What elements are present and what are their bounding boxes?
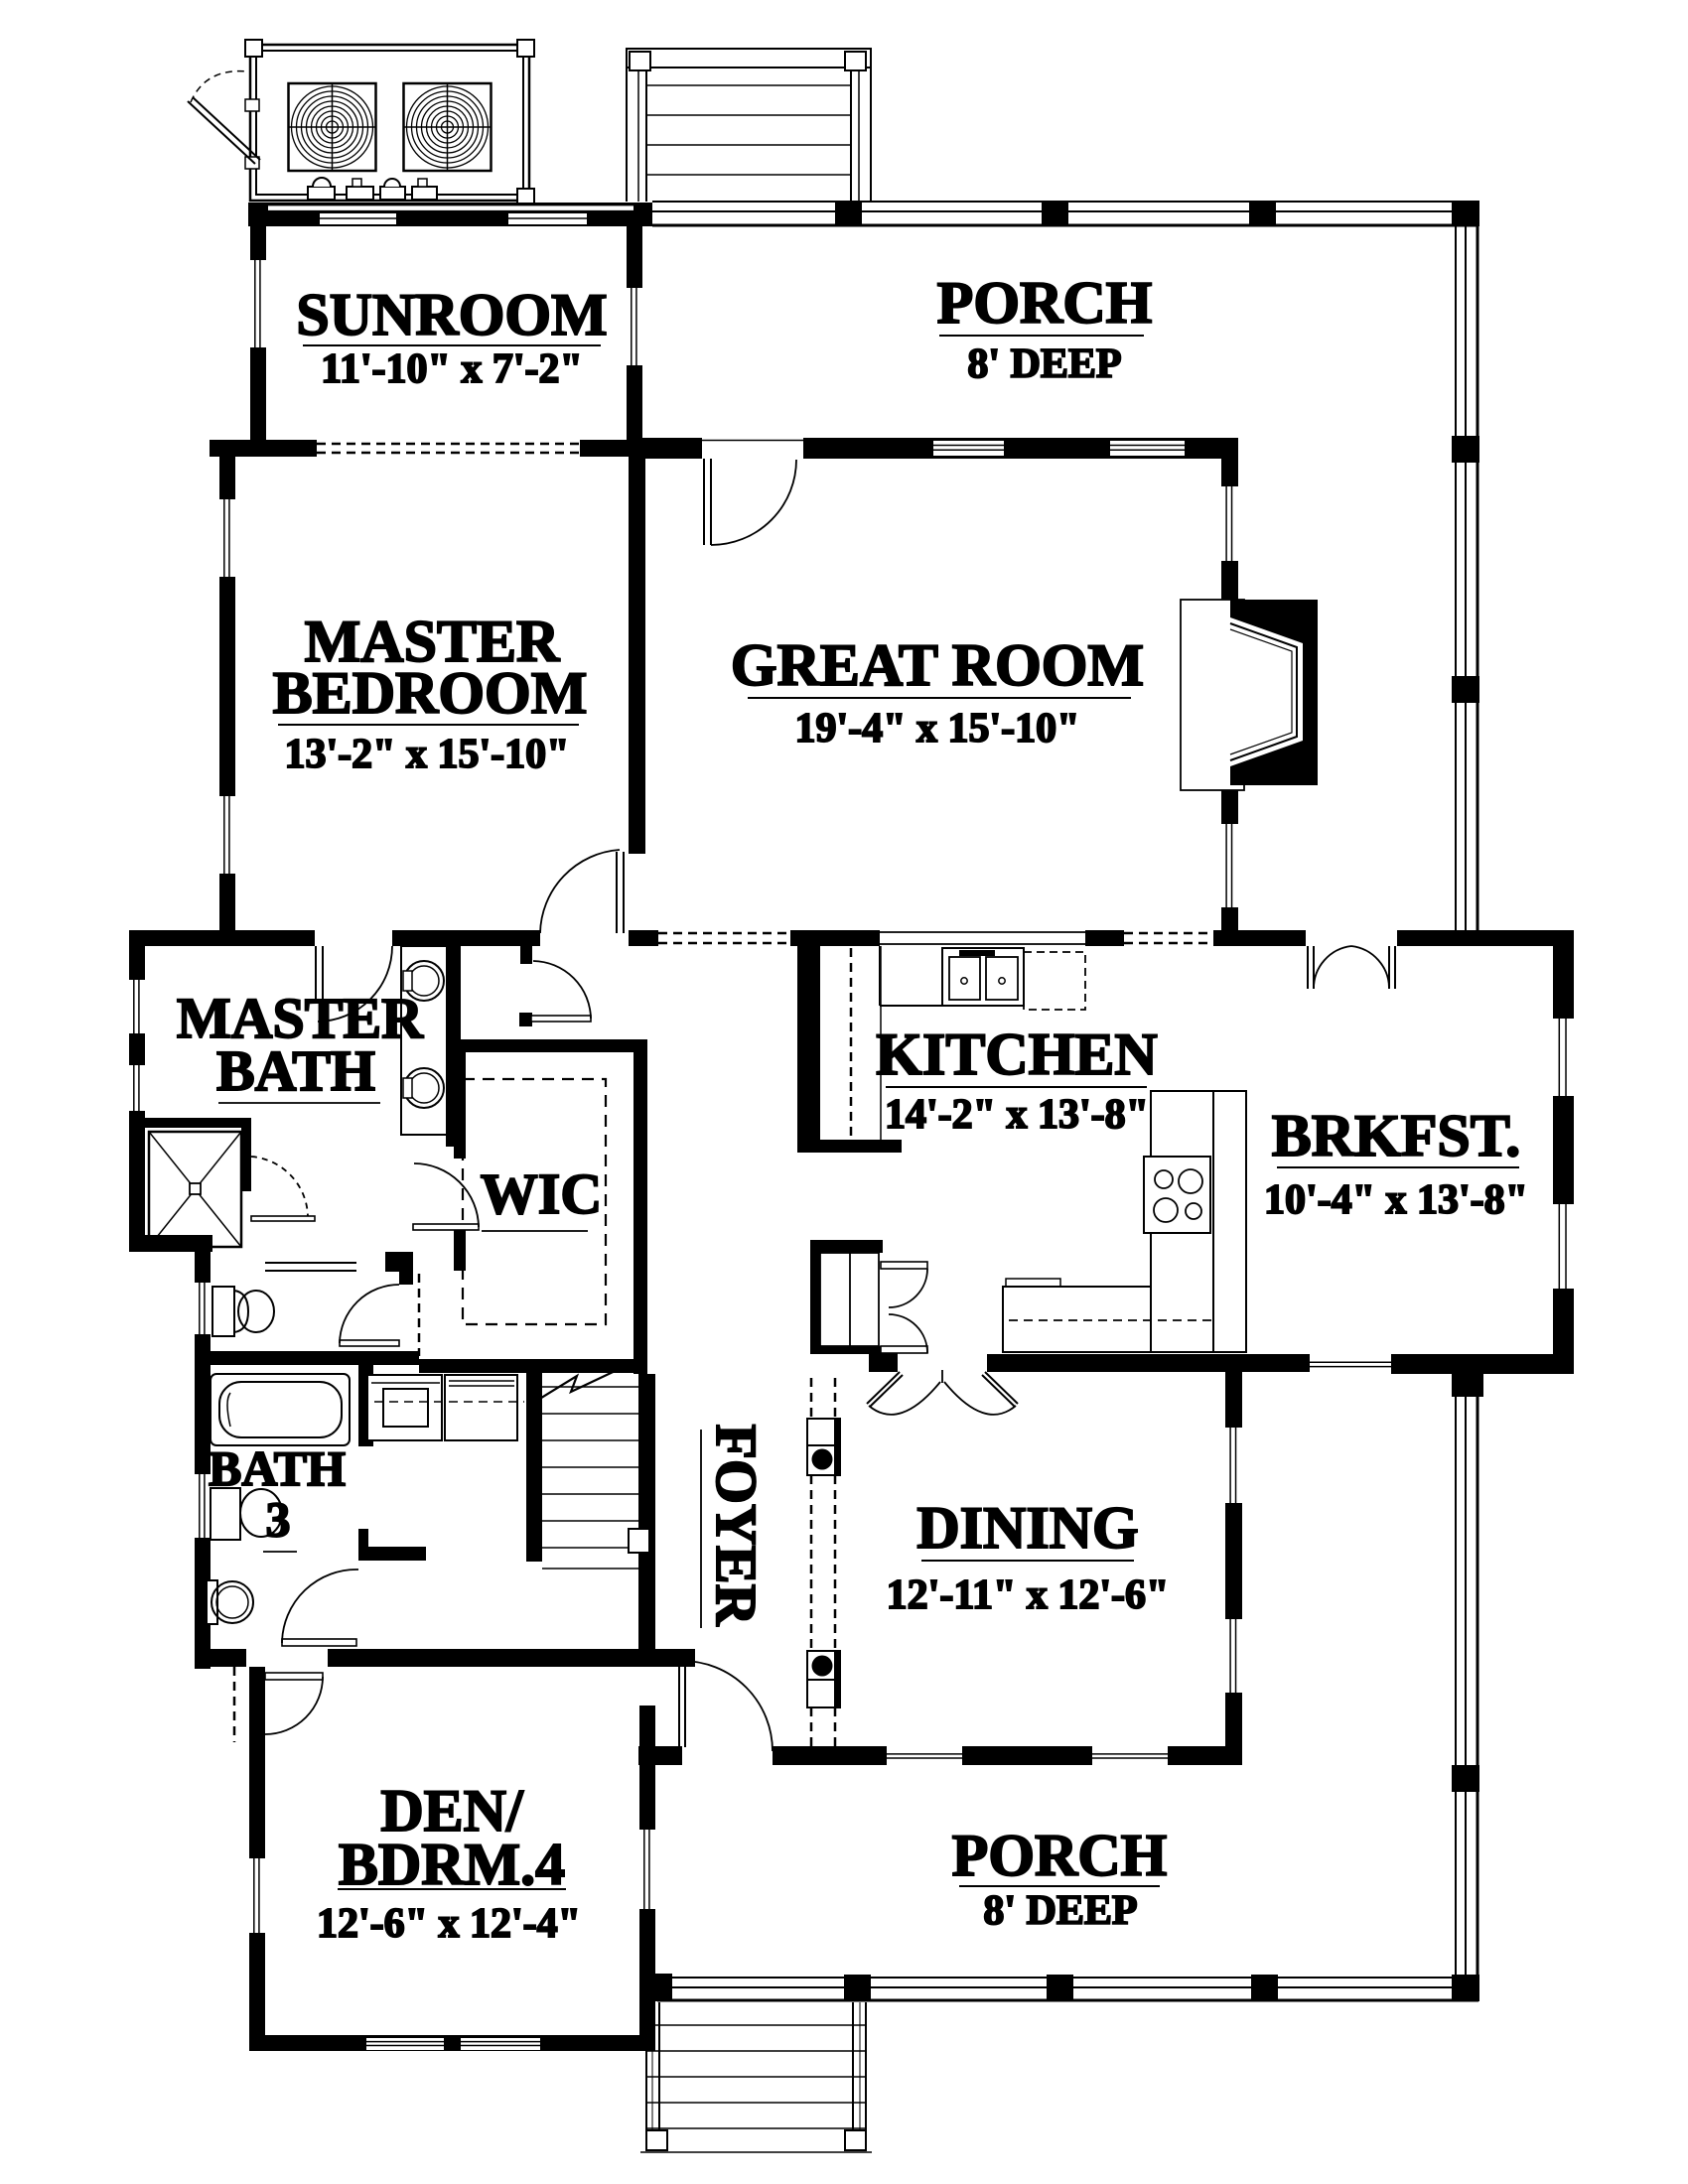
svg-text:8' DEEP: 8' DEEP: [967, 341, 1121, 387]
svg-text:DINING: DINING: [916, 1495, 1138, 1561]
svg-text:3: 3: [266, 1491, 291, 1547]
svg-text:12'-11" x 12'-6": 12'-11" x 12'-6": [887, 1572, 1170, 1618]
svg-text:SUNROOM: SUNROOM: [296, 282, 607, 347]
svg-text:FOYER: FOYER: [704, 1425, 769, 1627]
svg-text:14'-2" x 13'-8": 14'-2" x 13'-8": [885, 1092, 1149, 1138]
svg-text:BDRM.4: BDRM.4: [339, 1832, 565, 1897]
svg-text:11'-10" x 7'-2": 11'-10" x 7'-2": [321, 346, 583, 392]
svg-text:BATH: BATH: [209, 1440, 346, 1496]
svg-text:10'-4" x 13'-8": 10'-4" x 13'-8": [1264, 1177, 1528, 1223]
svg-text:12'-6" x 12'-4": 12'-6" x 12'-4": [317, 1901, 581, 1947]
svg-text:19'-4" x 15'-10": 19'-4" x 15'-10": [795, 706, 1080, 751]
svg-text:WIC: WIC: [481, 1161, 602, 1226]
svg-text:BEDROOM: BEDROOM: [273, 660, 588, 726]
svg-text:KITCHEN: KITCHEN: [876, 1022, 1157, 1087]
svg-text:PORCH: PORCH: [937, 270, 1153, 336]
svg-text:BRKFST.: BRKFST.: [1272, 1103, 1521, 1168]
svg-text:GREAT ROOM: GREAT ROOM: [731, 632, 1144, 698]
svg-text:PORCH: PORCH: [952, 1823, 1168, 1888]
svg-text:13'-2" x 15'-10": 13'-2" x 15'-10": [285, 732, 570, 777]
svg-text:8' DEEP: 8' DEEP: [983, 1888, 1137, 1934]
svg-text:BATH: BATH: [216, 1038, 375, 1103]
